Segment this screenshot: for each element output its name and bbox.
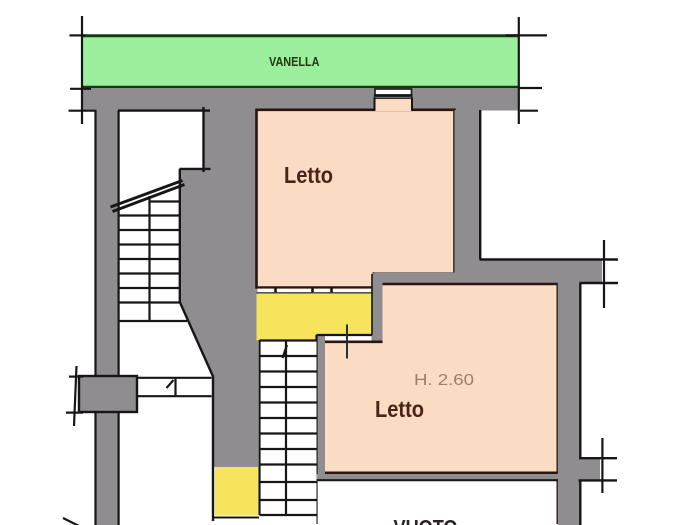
svg-text:Letto: Letto (284, 162, 333, 188)
svg-text:Letto: Letto (375, 396, 424, 422)
svg-text:H. 2.60: H. 2.60 (414, 372, 474, 389)
svg-text:VANELLA: VANELLA (269, 55, 320, 69)
svg-text:VUOTO: VUOTO (394, 516, 458, 525)
